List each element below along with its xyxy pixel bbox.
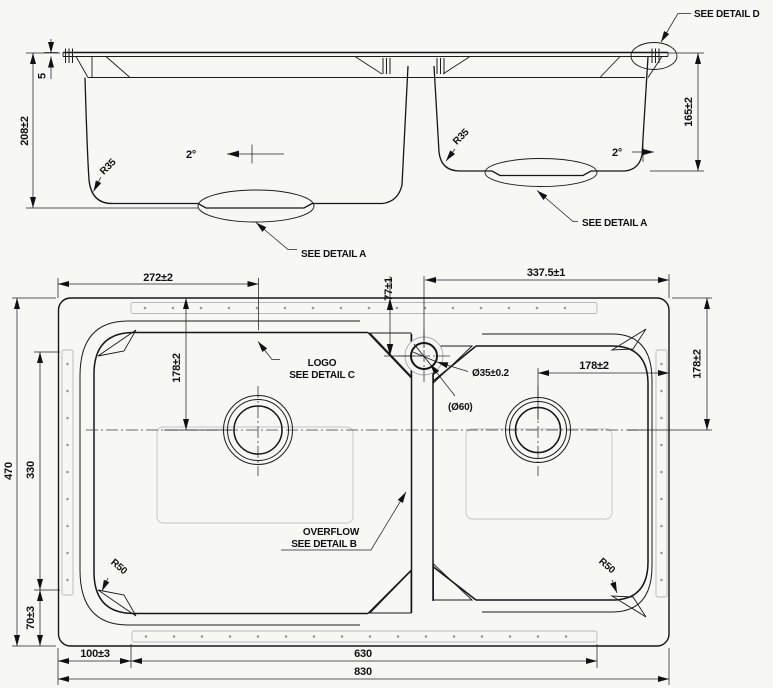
dim-178-right-v-label: 178±2 <box>692 349 704 379</box>
radius-r35-left-label: R35 <box>98 157 119 178</box>
groove-dot <box>66 444 69 447</box>
dim-right-drain-to-edge: 178±2 <box>538 360 669 420</box>
groove-dot <box>340 307 343 310</box>
groove-strip-left <box>62 350 73 595</box>
callout-logo: LOGO SEE DETAIL C <box>258 342 355 382</box>
left-bowl-flat-bottom <box>157 427 353 523</box>
callout-detail-a-right-label: SEE DETAIL A <box>582 218 647 229</box>
groove-dot <box>145 635 148 638</box>
groove-dot <box>257 635 260 638</box>
sink-rim-section <box>63 49 668 78</box>
groove-dot <box>312 307 315 310</box>
draft-angle-left: 2° <box>186 145 284 164</box>
groove-dot <box>480 307 483 310</box>
groove-dot <box>660 498 663 501</box>
groove-dot <box>66 525 69 528</box>
callout-overflow: OVERFLOW SEE DETAIL B <box>281 492 406 550</box>
radius-r35-center-label: R35 <box>451 127 472 148</box>
dim-470-label: 470 <box>3 462 15 480</box>
dim-rim-height-label: 5 <box>37 73 49 79</box>
dim-830-label: 830 <box>354 666 372 678</box>
callout-detail-a-left: SEE DETAIL A <box>256 223 366 261</box>
groove-dot <box>144 307 147 310</box>
groove-strip-top <box>131 303 597 314</box>
groove-dot <box>200 307 203 310</box>
dim-depth-right: 165±2 <box>650 53 704 171</box>
draft-angle-right-label: 2° <box>612 147 622 159</box>
radius-r50-bl-label: R50 <box>108 557 129 577</box>
overflow-label-2: SEE DETAIL B <box>291 539 357 550</box>
logo-label-1: LOGO <box>308 358 337 369</box>
groove-dot <box>66 552 69 555</box>
groove-dot <box>397 635 400 638</box>
dim-330-label: 330 <box>25 461 37 479</box>
dim-77-label: 77±1 <box>383 277 395 301</box>
faucet-hole: Ø35±0.2 (Ø60) <box>398 330 510 413</box>
dim-right-drain-from-top: 178±2 <box>628 298 712 430</box>
groove-dot <box>508 307 511 310</box>
left-bowl <box>80 321 412 625</box>
groove-dot <box>509 635 512 638</box>
callout-detail-a-left-label: SEE DETAIL A <box>301 249 366 260</box>
groove-dot <box>285 635 288 638</box>
groove-dot <box>313 635 316 638</box>
dim-272-label: 272±2 <box>143 272 173 284</box>
side-view: 208±2 5 165±2 2° 2° R35 <box>19 9 760 260</box>
groove-dot <box>66 579 69 582</box>
groove-dot <box>660 390 663 393</box>
right-bowl <box>434 329 653 617</box>
left-bowl-corner-darts <box>98 330 411 616</box>
clip-marks-left <box>66 49 73 64</box>
detail-a-ellipse-right <box>485 159 597 187</box>
drain-centerlines <box>86 386 648 476</box>
groove-dot <box>537 635 540 638</box>
groove-dot <box>660 417 663 420</box>
dim-left-drain-from-top: 178±2 <box>164 298 232 430</box>
dim-bottom-corner: 70±3 <box>25 590 40 646</box>
groove-dot <box>660 444 663 447</box>
groove-dot <box>172 307 175 310</box>
groove-dot <box>173 635 176 638</box>
sink-outer-edge <box>59 298 670 646</box>
radius-r50-bottom-left: R50 <box>102 557 129 591</box>
rim-chamfer-lines <box>76 57 662 78</box>
callout-detail-a-right: SEE DETAIL A <box>537 191 647 230</box>
groove-dot <box>660 579 663 582</box>
groove-strip-bottom <box>132 631 597 642</box>
groove-dot <box>660 552 663 555</box>
groove-dot <box>565 635 568 638</box>
groove-dot <box>341 635 344 638</box>
dim-178-left-label: 178±2 <box>171 353 183 383</box>
draft-angle-right: 2° <box>612 142 654 162</box>
groove-dot <box>66 471 69 474</box>
dim-bottom-span: 630 <box>131 644 597 668</box>
drawing-svg: 208±2 5 165±2 2° 2° R35 <box>0 0 773 688</box>
radius-r50-br-label: R50 <box>596 556 617 576</box>
callout-detail-d: SEE DETAIL D <box>661 9 760 42</box>
groove-dot <box>284 307 287 310</box>
logo-label-2: SEE DETAIL C <box>289 370 355 381</box>
bowl-divider <box>412 334 434 613</box>
overflow-label-1: OVERFLOW <box>303 527 360 538</box>
groove-dot <box>452 307 455 310</box>
groove-strip-right <box>656 350 667 597</box>
groove-dot <box>453 635 456 638</box>
groove-dot <box>425 635 428 638</box>
groove-dot <box>66 390 69 393</box>
groove-dot <box>660 525 663 528</box>
dim-rim-height: 5 <box>37 39 59 79</box>
faucet-hole-dia-label: Ø35±0.2 <box>472 368 510 379</box>
groove-dot <box>396 307 399 310</box>
groove-dot <box>229 635 232 638</box>
radius-r50-bottom-right: R50 <box>596 556 617 593</box>
dim-70-label: 70±3 <box>25 606 37 630</box>
dim-100-label: 100±3 <box>80 648 110 660</box>
groove-dot <box>536 307 539 310</box>
detail-a-ellipse-left <box>198 190 314 222</box>
dim-groove-span: 330 <box>25 352 60 590</box>
groove-dot <box>201 635 204 638</box>
groove-dot <box>66 363 69 366</box>
groove-dot <box>660 363 663 366</box>
draft-angle-left-label: 2° <box>186 149 196 161</box>
dim-630-label: 630 <box>354 648 372 660</box>
dim-depth-left-label: 208±2 <box>19 116 31 146</box>
right-bowl-corner-darts <box>434 329 647 617</box>
dim-depth-right-label: 165±2 <box>683 97 695 127</box>
dim-178-right-h-label: 178±2 <box>579 360 609 372</box>
right-bowl-flat-bottom <box>466 429 612 519</box>
technical-drawing-sink: 208±2 5 165±2 2° 2° R35 <box>0 0 773 688</box>
radius-r35-left: R35 <box>94 157 119 192</box>
groove-dot <box>256 307 259 310</box>
callout-detail-d-label: SEE DETAIL D <box>694 9 760 20</box>
dim-faucet-to-right-edge: 337.5±1 <box>424 267 669 348</box>
groove-dot <box>481 635 484 638</box>
groove-dot <box>564 307 567 310</box>
groove-dot <box>369 635 372 638</box>
groove-dot <box>368 307 371 310</box>
groove-dot <box>228 307 231 310</box>
plan-view: Ø35±0.2 (Ø60) LOGO SEE DETAIL C OVERFLOW… <box>3 267 712 685</box>
left-bowl-profile <box>85 66 408 208</box>
groove-dot <box>66 417 69 420</box>
bowl-profiles <box>85 43 677 223</box>
groove-dot <box>660 471 663 474</box>
groove-dot <box>66 498 69 501</box>
clip-marks-right <box>652 49 659 64</box>
radius-r35-center: R35 <box>446 127 472 161</box>
detail-d-ellipse <box>631 43 677 70</box>
dim-337-label: 337.5±1 <box>527 267 565 279</box>
faucet-boss-dia-label: (Ø60) <box>448 402 473 413</box>
left-bowl-opening <box>94 333 412 614</box>
